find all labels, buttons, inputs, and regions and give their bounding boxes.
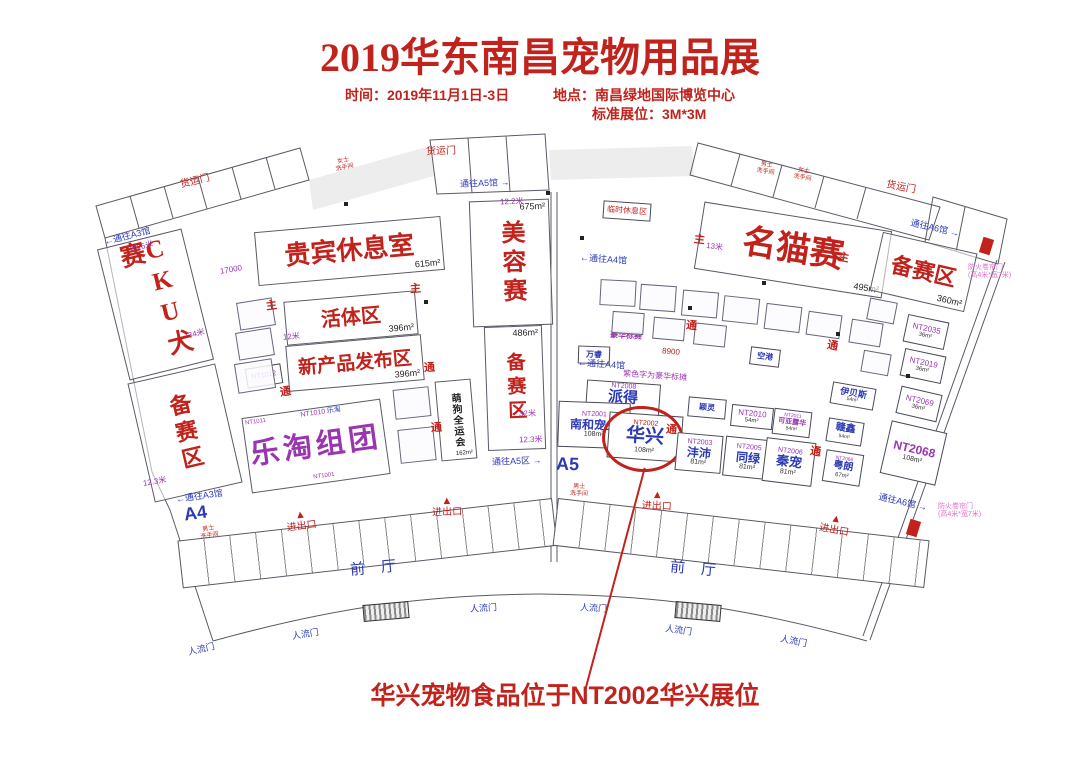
pillar [836, 332, 840, 336]
dimension-label: 8900 [662, 347, 680, 357]
zone-name: 备赛区 [165, 391, 205, 475]
aisle-marker: 通 [826, 339, 839, 353]
dimension-label: 32米 [519, 410, 536, 419]
pillar [688, 306, 692, 310]
booth-nt2010: NT2010 54m² [730, 404, 774, 430]
booth-yuelang: NT2066 粤朗 67m² [822, 449, 865, 487]
to-a5-hall-link: 通往A5馆 → [460, 178, 510, 190]
booth-box [599, 279, 636, 307]
zone-area: 162m² [456, 450, 473, 457]
booth-area: 67m² [835, 472, 849, 480]
zone-area: 486m² [512, 328, 538, 338]
people-door-label: 人流门 [580, 603, 607, 614]
booth-number: NT1010 乐淘 [300, 406, 341, 419]
zone-beauty-contest: 美容赛 675m² [469, 199, 553, 328]
booth-number: NT1001 [313, 472, 335, 482]
zone-area: 360m² [936, 294, 963, 309]
aisle-marker: 通 [279, 385, 292, 399]
booth-box [860, 350, 891, 377]
cargo-door-label: 货运门 [426, 145, 456, 157]
zone-name: 备赛区 [889, 254, 958, 290]
booth-yingling: 颖灵 [687, 396, 727, 419]
people-door-label: 人流门 [470, 603, 497, 614]
booth-box [764, 303, 803, 333]
dimension-label: 12米 [283, 332, 301, 342]
zone-name: 乐淘组团 [249, 422, 384, 469]
booth-box [611, 311, 644, 335]
entrance-exit-label: ▲ 进出口 [285, 508, 317, 533]
booth-name: 临时休息区 [607, 205, 647, 216]
zone-prep-area-mid: 备赛区 486m² [484, 325, 546, 451]
zone-area: 615m² [415, 258, 441, 269]
pillar [546, 191, 550, 195]
booth-rest-area: 临时休息区 [602, 200, 651, 221]
main-aisle-marker: 主 [410, 283, 422, 296]
booth-area: 81m² [690, 459, 707, 468]
booth-kongta: 空港 [749, 346, 781, 368]
zone-name: CKU犬赛 [115, 234, 196, 375]
booth-name: 乐淘 [326, 406, 341, 415]
entrance-exit-label: ▲ 进出口 [432, 495, 463, 518]
zone-area: 396m² [394, 368, 420, 379]
booth-box [681, 289, 719, 318]
dimension-label: 12.3米 [519, 436, 543, 446]
zone-name: 名猫赛 [740, 225, 846, 275]
hall-label-a5: A5 [556, 455, 580, 476]
annotation-text: 华兴宠物食品位于NT2002华兴展位 [255, 683, 875, 711]
booth-number: NT1011 [245, 418, 267, 427]
zone-name: 美容赛 [497, 219, 524, 307]
aisle-marker: 通 [424, 362, 436, 375]
fire-door-note: 防火卷帘门 (高4米*宽7米) [968, 264, 1011, 279]
arrow-right-icon: → [532, 455, 541, 465]
booth-area: 81m² [739, 463, 756, 472]
booth-name: 颖灵 [699, 403, 716, 413]
booth-area: 81m² [779, 468, 796, 477]
aisle-marker: 通 [431, 422, 443, 435]
pillar [580, 236, 584, 240]
restroom-label-male: 男士洗手间 [756, 161, 776, 177]
booth-area: 54m² [838, 434, 850, 441]
booth-box [652, 317, 686, 342]
main-aisle-marker: 主 [693, 233, 705, 246]
booth-box [639, 284, 677, 312]
booth-box [848, 319, 883, 348]
pillar [344, 202, 348, 206]
arrow-up-icon: ▲ [652, 490, 663, 502]
main-aisle-marker: 主 [837, 251, 850, 265]
booth-area: 54m² [744, 417, 758, 425]
zone-name: 活体区 [320, 305, 382, 330]
zone-name: 贵宾休息室 [284, 232, 416, 269]
hall-label-a4: A4 [183, 502, 209, 525]
booth-box [234, 358, 276, 394]
arrow-up-icon: ▲ [441, 496, 452, 507]
booth-area: 54m² [846, 397, 858, 404]
zone-dog-games: 萌狗全运会 162m² [435, 379, 478, 462]
zone-name: 萌狗全运会 [449, 392, 464, 448]
booth-area: 54m² [785, 426, 797, 433]
booth-area: 108m² [584, 431, 604, 439]
fire-door-note: 防火卷帘门 (高4米*宽7米) [938, 503, 981, 518]
pillar [424, 300, 428, 304]
to-a5-zone-link: 通往A5区 → [492, 456, 542, 468]
entrance-exit-label: ▲ 进出口 [641, 489, 672, 513]
booth-box [393, 386, 432, 420]
booth-box [235, 327, 275, 360]
booth-box [722, 295, 761, 325]
zone-area: 396m² [388, 323, 414, 334]
pillar [906, 374, 910, 378]
aisle-marker: 通 [685, 319, 697, 332]
booth-keya: NT2011 可亚露华 54m² [772, 408, 813, 438]
aisle-marker: 通 [665, 424, 677, 437]
booth-box [693, 322, 727, 347]
arrow-right-icon: → [500, 177, 509, 187]
booth-qinchong: NT2006 秦宠 81m² [762, 437, 817, 487]
main-aisle-marker: 主 [265, 299, 278, 313]
aisle-marker: 通 [809, 445, 822, 459]
booth-name: 空港 [757, 352, 774, 362]
floorplan-page: 2019华东南昌宠物用品展 时间：2019年11月1日-3日 地点：南昌绿地国际… [0, 0, 1080, 773]
booth-fengpei: NT2003 沣沛 81m² [674, 432, 723, 474]
restroom-label-male: 男士洗手间 [570, 484, 588, 498]
pillar [762, 281, 766, 285]
dimension-label: 12.2米 [500, 198, 524, 208]
